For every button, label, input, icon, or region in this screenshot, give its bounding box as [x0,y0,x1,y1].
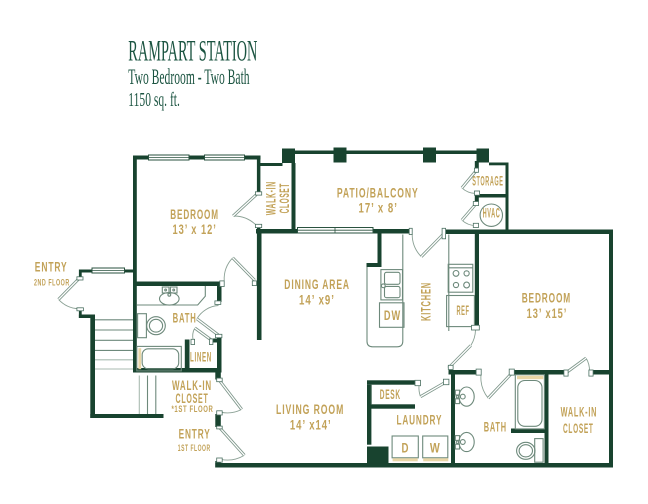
svg-text:*1ST FLOOR: *1ST FLOOR [172,404,214,414]
svg-text:BATH: BATH [484,420,507,435]
svg-text:BATH: BATH [173,310,197,325]
svg-text:BEDROOM: BEDROOM [170,207,219,222]
svg-text:14’ x9’: 14’ x9’ [299,292,335,307]
svg-text:13’ x 12’: 13’ x 12’ [172,222,216,237]
svg-text:LINEN: LINEN [190,350,212,365]
svg-text:PATIO/BALCONY: PATIO/BALCONY [337,186,419,201]
svg-text:HVAC: HVAC [483,205,501,220]
svg-text:BEDROOM: BEDROOM [522,290,571,305]
svg-text:RAMPART STATION: RAMPART STATION [128,35,257,67]
svg-text:13’ x15’: 13’ x15’ [527,306,568,321]
svg-text:DESK: DESK [380,387,401,402]
svg-text:CLOSET: CLOSET [277,183,292,213]
svg-text:LAUNDRY: LAUNDRY [397,412,443,427]
svg-text:DW: DW [384,308,401,323]
svg-text:17’ x 8’: 17’ x 8’ [359,200,398,215]
svg-text:2ND FLOOR: 2ND FLOOR [34,277,70,287]
svg-text:ENTRY: ENTRY [179,427,211,442]
svg-text:REF: REF [456,303,469,318]
svg-text:1150 sq. ft.: 1150 sq. ft. [128,90,180,111]
svg-text:Two Bedroom - Two Bath: Two Bedroom - Two Bath [128,64,249,89]
svg-text:1ST FLOOR: 1ST FLOOR [178,443,211,453]
svg-text:KITCHEN: KITCHEN [419,282,434,321]
svg-text:D: D [402,440,410,455]
svg-text:WALK-IN: WALK-IN [561,404,598,419]
svg-text:W: W [430,440,441,455]
svg-text:DINING AREA: DINING AREA [284,277,350,292]
svg-text:14’ x14’: 14’ x14’ [290,418,332,433]
svg-text:CLOSET: CLOSET [563,421,594,436]
svg-text:ENTRY: ENTRY [35,260,68,275]
svg-text:STORAGE: STORAGE [472,174,503,189]
svg-text:LIVING ROOM: LIVING ROOM [276,402,344,417]
